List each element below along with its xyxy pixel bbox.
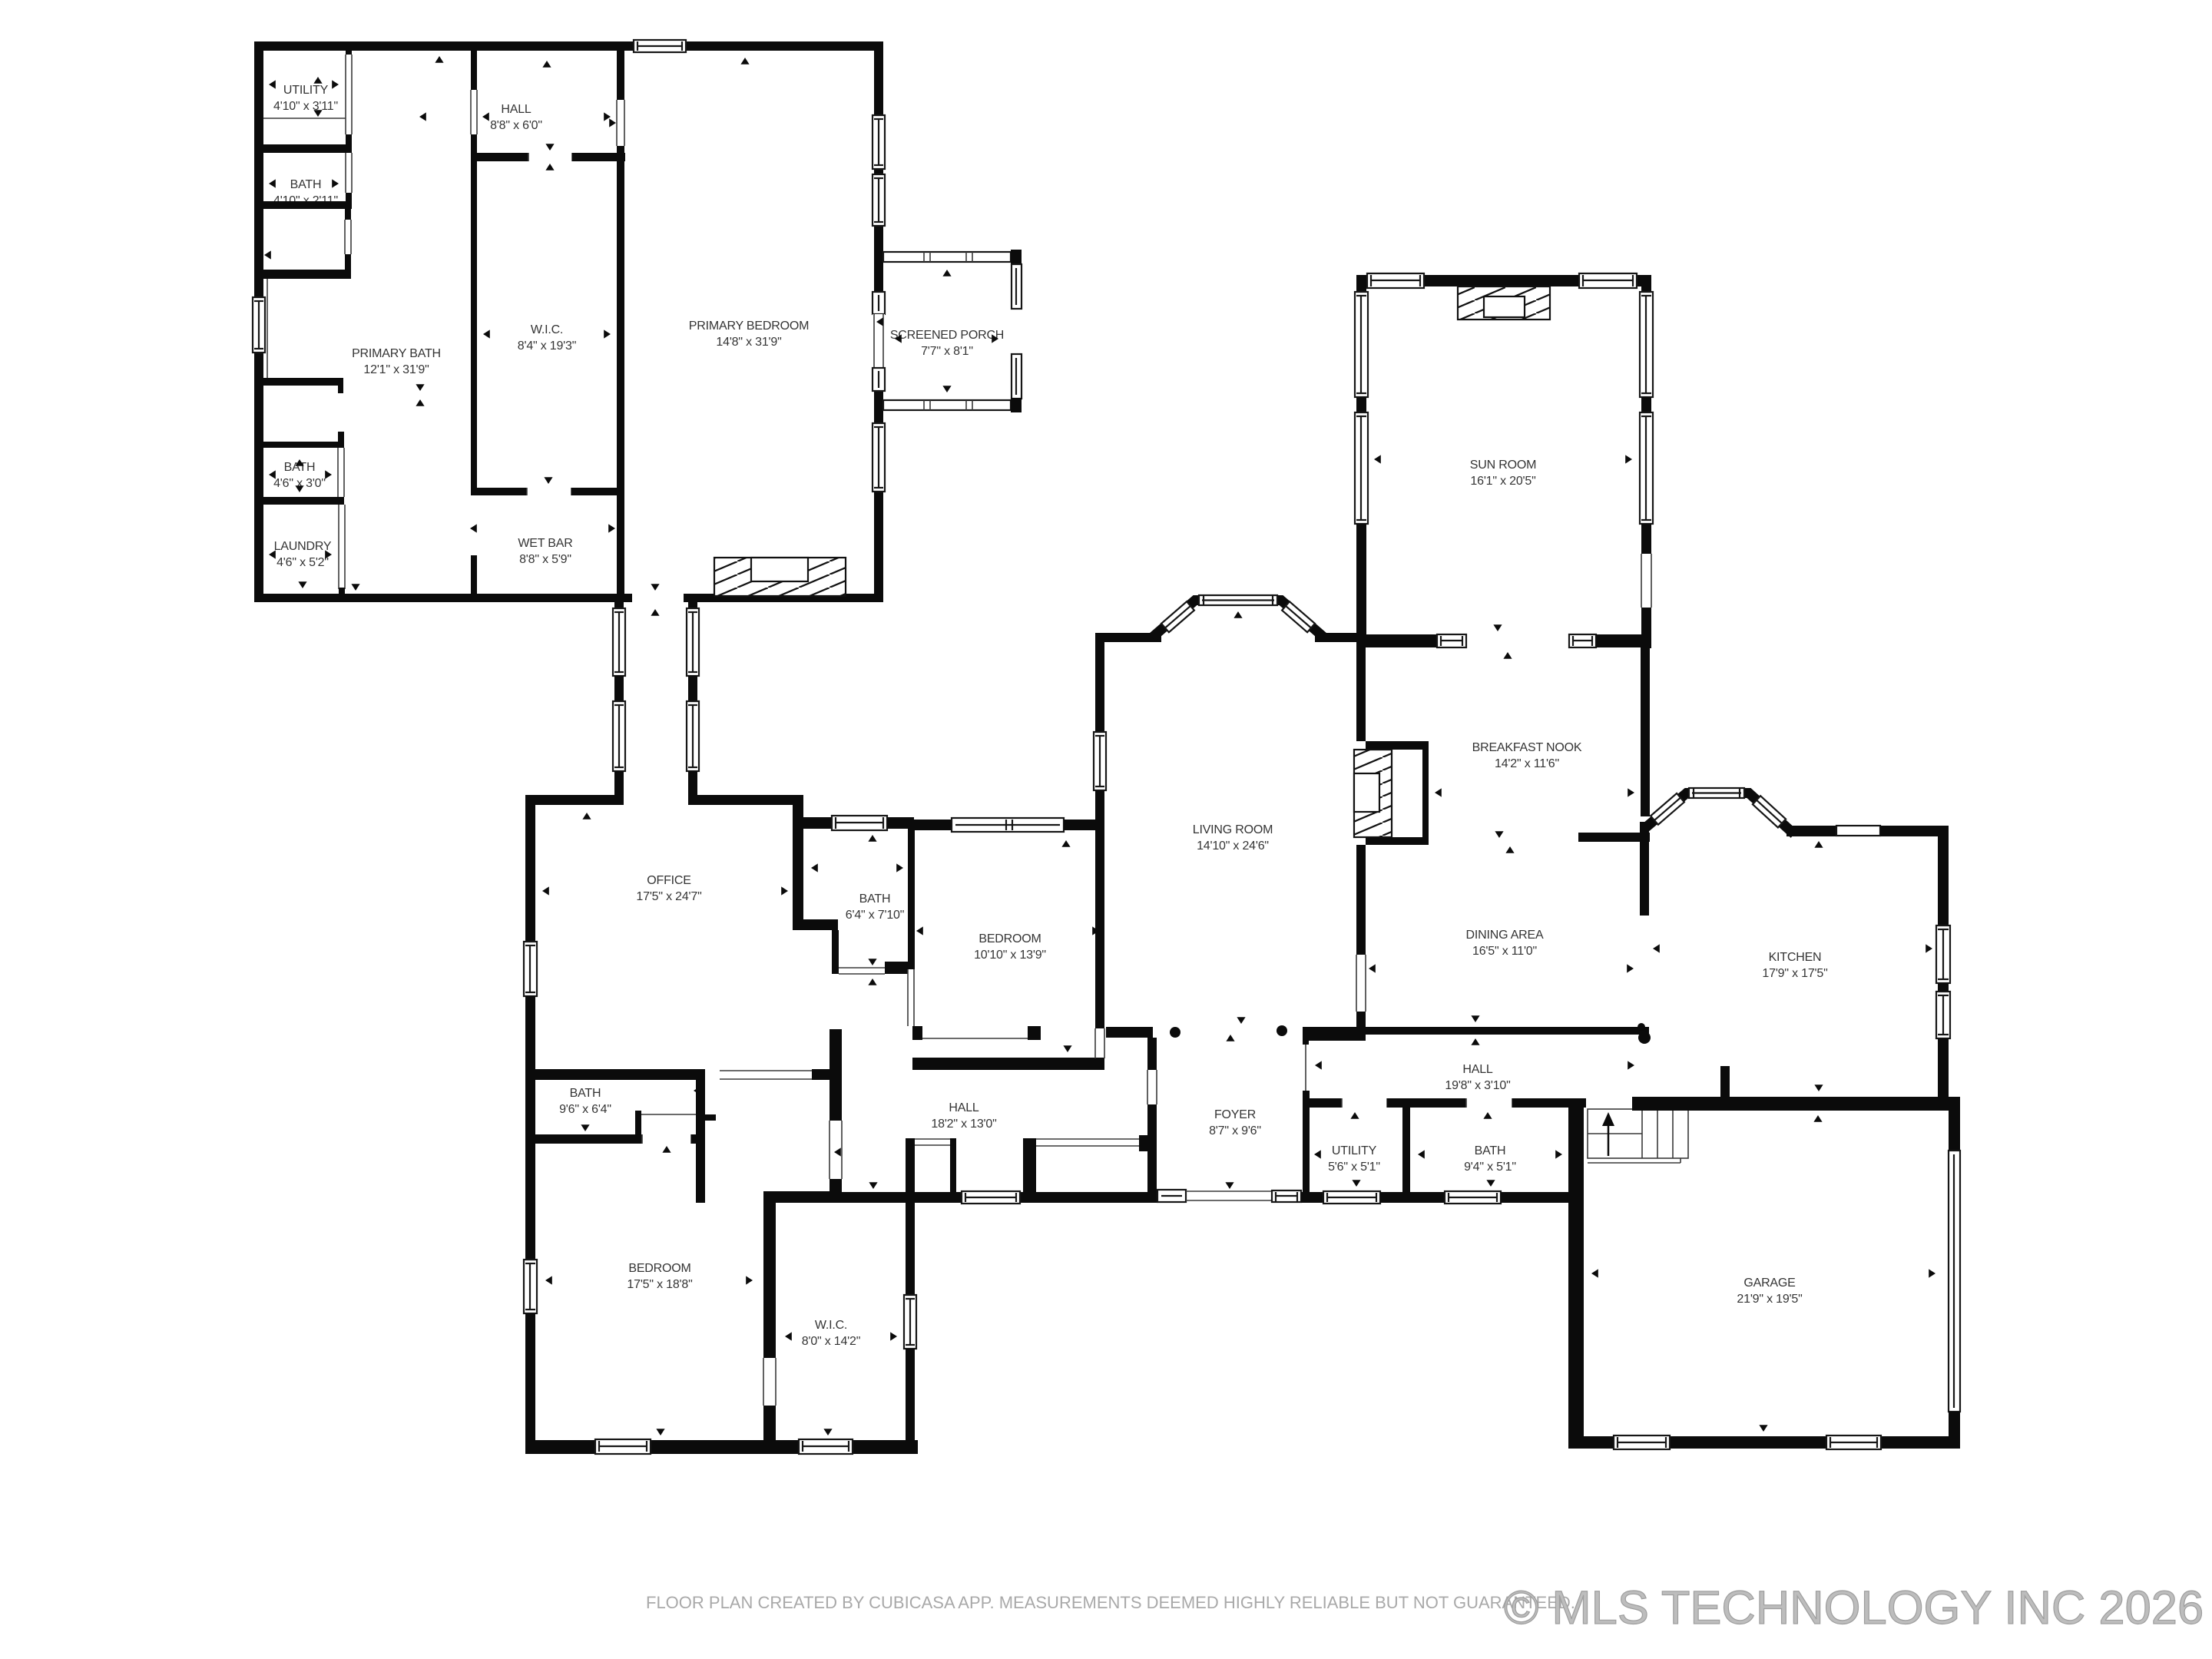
svg-text:19'8" x 3'10": 19'8" x 3'10" <box>1445 1079 1510 1092</box>
svg-text:PRIMARY BATH: PRIMARY BATH <box>352 347 441 360</box>
svg-text:16'5" x 11'0": 16'5" x 11'0" <box>1472 945 1537 958</box>
svg-text:W.I.C.: W.I.C. <box>815 1319 847 1332</box>
svg-text:© MLS TECHNOLOGY INC 2026: © MLS TECHNOLOGY INC 2026 <box>1504 1581 2204 1634</box>
svg-text:17'9" x 17'5": 17'9" x 17'5" <box>1762 967 1827 980</box>
svg-text:14'8" x 31'9": 14'8" x 31'9" <box>716 336 781 349</box>
svg-text:14'10" x 24'6": 14'10" x 24'6" <box>1197 839 1269 853</box>
svg-text:FLOOR PLAN CREATED BY CUBICASA: FLOOR PLAN CREATED BY CUBICASA APP. MEAS… <box>646 1593 1575 1612</box>
svg-text:SUN ROOM: SUN ROOM <box>1470 459 1536 472</box>
svg-text:BATH: BATH <box>570 1087 601 1100</box>
svg-text:UTILITY: UTILITY <box>283 84 329 97</box>
svg-text:7'7" x 8'1": 7'7" x 8'1" <box>921 345 973 358</box>
svg-text:LAUNDRY: LAUNDRY <box>274 540 332 553</box>
svg-text:10'10" x 13'9": 10'10" x 13'9" <box>974 949 1046 962</box>
svg-text:8'7" x 9'6": 8'7" x 9'6" <box>1209 1124 1261 1137</box>
svg-text:12'1" x 31'9": 12'1" x 31'9" <box>363 363 429 376</box>
svg-text:14'2" x 11'6": 14'2" x 11'6" <box>1495 757 1559 770</box>
svg-text:W.I.C.: W.I.C. <box>531 323 563 336</box>
svg-text:6'4" x 7'10": 6'4" x 7'10" <box>846 909 904 922</box>
svg-text:BATH: BATH <box>290 178 322 191</box>
svg-text:BEDROOM: BEDROOM <box>628 1262 690 1275</box>
svg-text:BEDROOM: BEDROOM <box>979 932 1041 945</box>
svg-text:BREAKFAST NOOK: BREAKFAST NOOK <box>1472 741 1582 754</box>
svg-text:SCREENED PORCH: SCREENED PORCH <box>890 329 1004 342</box>
svg-text:17'5" x 24'7": 17'5" x 24'7" <box>636 890 701 903</box>
svg-text:WET BAR: WET BAR <box>518 537 572 550</box>
svg-text:9'6" x 6'4": 9'6" x 6'4" <box>559 1103 611 1116</box>
svg-text:HALL: HALL <box>949 1101 979 1114</box>
svg-text:LIVING ROOM: LIVING ROOM <box>1193 823 1273 836</box>
svg-text:DINING AREA: DINING AREA <box>1466 929 1544 942</box>
svg-text:8'8" x 5'9": 8'8" x 5'9" <box>519 553 571 566</box>
svg-text:9'4" x 5'1": 9'4" x 5'1" <box>1464 1161 1516 1174</box>
svg-text:UTILITY: UTILITY <box>1332 1144 1377 1157</box>
svg-text:KITCHEN: KITCHEN <box>1769 951 1822 964</box>
svg-text:17'5" x 18'8": 17'5" x 18'8" <box>627 1278 692 1291</box>
svg-text:FOYER: FOYER <box>1214 1108 1256 1121</box>
svg-text:21'9" x 19'5": 21'9" x 19'5" <box>1737 1293 1802 1306</box>
svg-text:8'8" x 6'0": 8'8" x 6'0" <box>490 119 542 132</box>
svg-text:16'1" x 20'5": 16'1" x 20'5" <box>1470 475 1535 488</box>
svg-text:HALL: HALL <box>501 103 531 116</box>
svg-text:BATH: BATH <box>859 892 891 906</box>
svg-text:18'2" x 13'0": 18'2" x 13'0" <box>931 1118 996 1131</box>
svg-text:5'6" x 5'1": 5'6" x 5'1" <box>1328 1161 1380 1174</box>
svg-text:OFFICE: OFFICE <box>647 874 690 887</box>
svg-text:HALL: HALL <box>1462 1063 1493 1076</box>
svg-text:4'6" x 5'2": 4'6" x 5'2" <box>276 556 329 569</box>
svg-text:GARAGE: GARAGE <box>1743 1277 1795 1290</box>
svg-text:4'10" x 3'11": 4'10" x 3'11" <box>273 100 338 113</box>
svg-text:BATH: BATH <box>1475 1144 1506 1157</box>
svg-text:8'4" x 19'3": 8'4" x 19'3" <box>518 339 576 353</box>
svg-text:PRIMARY BEDROOM: PRIMARY BEDROOM <box>689 320 809 333</box>
svg-text:8'0" x 14'2": 8'0" x 14'2" <box>802 1335 860 1348</box>
